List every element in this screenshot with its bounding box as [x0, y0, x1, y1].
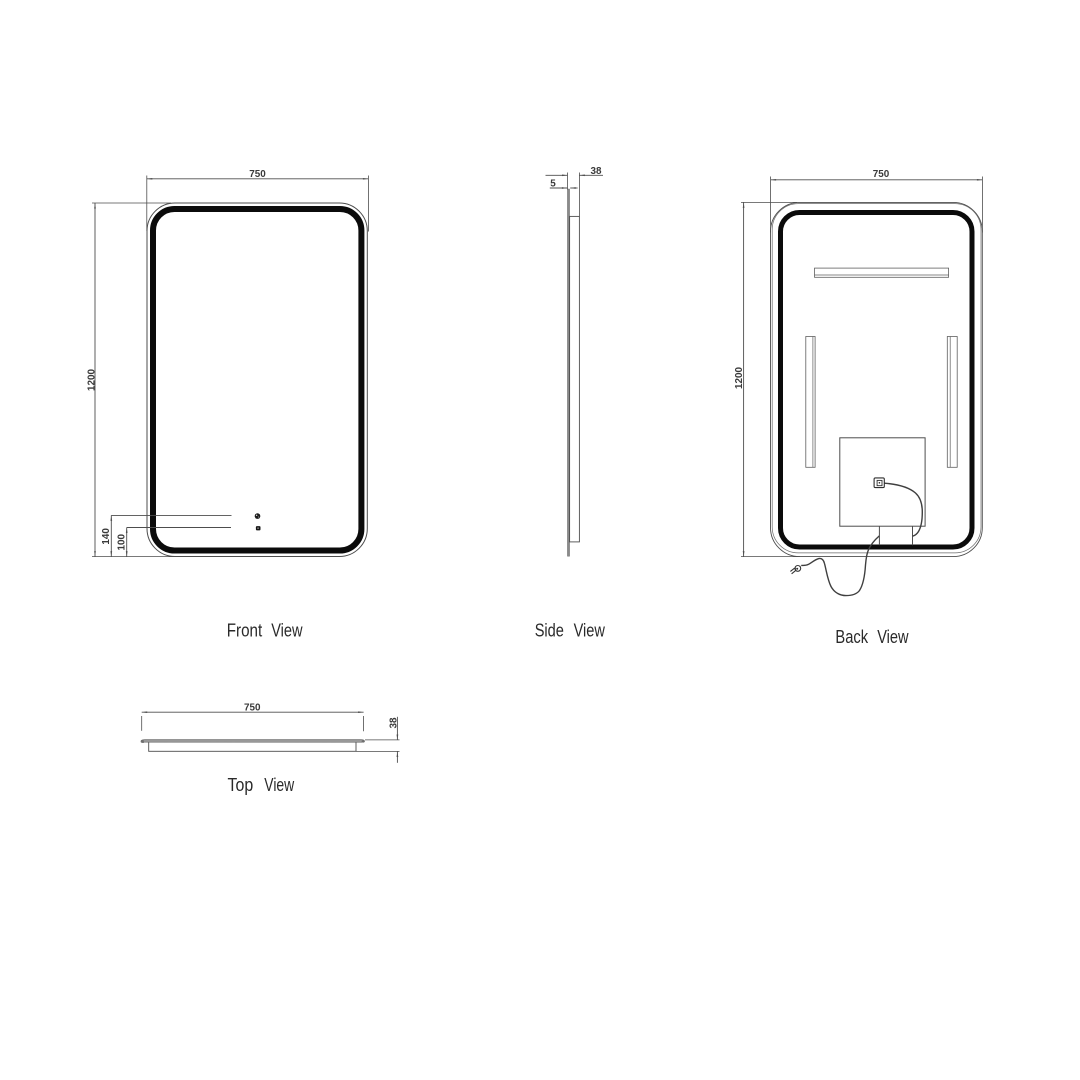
- svg-text:Top: Top: [228, 774, 254, 795]
- svg-text:140: 140: [101, 528, 112, 545]
- svg-text:1200: 1200: [734, 367, 745, 389]
- svg-text:Back: Back: [835, 626, 868, 647]
- svg-text:5: 5: [550, 179, 556, 190]
- svg-text:100: 100: [116, 534, 127, 551]
- svg-text:38: 38: [388, 717, 399, 728]
- svg-text:1200: 1200: [87, 369, 98, 391]
- svg-text:750: 750: [244, 703, 261, 714]
- svg-text:View: View: [574, 620, 606, 641]
- svg-text:750: 750: [249, 169, 266, 180]
- svg-text:Side: Side: [535, 620, 564, 641]
- svg-text:View: View: [264, 774, 294, 795]
- svg-text:View: View: [877, 626, 909, 647]
- svg-text:750: 750: [873, 169, 890, 180]
- svg-text:View: View: [271, 620, 303, 641]
- svg-text:Front: Front: [227, 620, 262, 641]
- svg-text:38: 38: [591, 166, 602, 177]
